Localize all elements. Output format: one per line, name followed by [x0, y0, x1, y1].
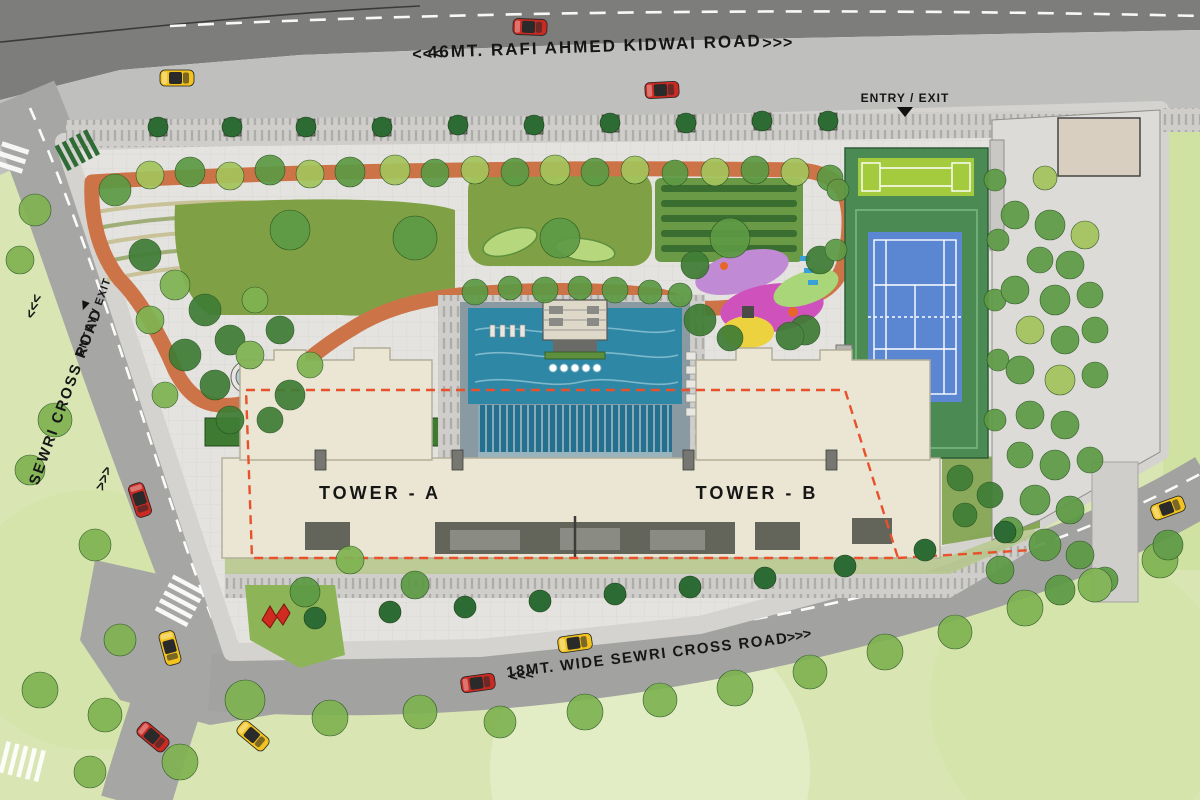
east-plaza — [1058, 118, 1140, 176]
tower-b-footprint — [696, 348, 930, 460]
entry-exit-top-label: ENTRY / EXIT — [861, 91, 950, 105]
swimming-pool — [438, 295, 705, 465]
tower-a-footprint — [240, 348, 432, 460]
top-road-arrows-left: <<< — [412, 45, 444, 63]
site-plan-svg: 46MT. RAFI AHMED KIDWAI ROAD <<< >>> ENT… — [0, 0, 1200, 800]
south-road-arrows-left: <<< — [508, 666, 534, 685]
site-plan: 46MT. RAFI AHMED KIDWAI ROAD <<< >>> ENT… — [0, 0, 1200, 800]
tower-b-label: TOWER - B — [696, 483, 819, 503]
top-road-arrows-right: >>> — [762, 34, 794, 52]
tower-a-label: TOWER - A — [319, 483, 441, 503]
